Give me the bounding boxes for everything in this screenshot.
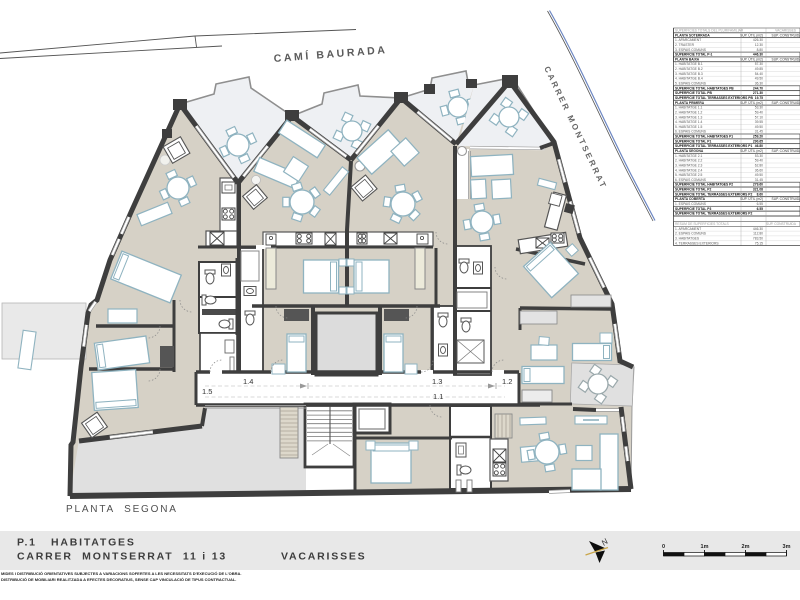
svg-text:112.80: 112.80 xyxy=(753,232,763,236)
svg-text:59.40: 59.40 xyxy=(755,110,763,114)
svg-text:P.1 HABITATGES: P.1 HABITATGES xyxy=(17,537,136,549)
svg-text:49.85: 49.85 xyxy=(755,67,763,71)
svg-text:1. ESPAIS COMUNS: 1. ESPAIS COMUNS xyxy=(675,202,707,206)
svg-text:31.45: 31.45 xyxy=(755,130,763,134)
svg-text:271.30: 271.30 xyxy=(753,91,763,95)
svg-text:783.50: 783.50 xyxy=(753,236,763,240)
svg-text:3m: 3m xyxy=(783,544,791,550)
svg-text:SUPERFICIE TOTAL P2: SUPERFICIE TOTAL P2 xyxy=(675,188,711,192)
svg-text:DISTRIBUCIÓ DE MOBILIARI REALI: DISTRIBUCIÓ DE MOBILIARI REALITZADA A EF… xyxy=(1,577,236,582)
svg-text:49.50: 49.50 xyxy=(755,125,763,129)
svg-text:62.80: 62.80 xyxy=(755,164,763,168)
svg-text:3. HABITATGES: 3. HABITATGES xyxy=(675,236,700,240)
svg-text:PLANTA COBERTA: PLANTA COBERTA xyxy=(675,197,706,201)
svg-text:446.30: 446.30 xyxy=(753,53,763,57)
svg-text:SUP. ÚTIL (m2): SUP. ÚTIL (m2) xyxy=(740,101,763,105)
svg-text:SUP. CONSTRUIDA: SUP. CONSTRUIDA xyxy=(766,222,797,226)
svg-text:1. HABITATGE 1.1: 1. HABITATGE 1.1 xyxy=(675,106,703,110)
svg-text:31.45: 31.45 xyxy=(755,178,763,182)
svg-text:1.2: 1.2 xyxy=(502,377,512,386)
svg-text:1.1: 1.1 xyxy=(433,392,443,401)
svg-text:2m: 2m xyxy=(742,544,750,550)
svg-text:8.80: 8.80 xyxy=(757,48,764,52)
svg-text:SUP. CONSTRUIDA (m2): SUP. CONSTRUIDA (m2) xyxy=(772,101,800,105)
svg-text:5. ESPAIS COMUNS: 5. ESPAIS COMUNS xyxy=(675,82,707,86)
svg-text:3. ESPAIS COMUNS: 3. ESPAIS COMUNS xyxy=(675,48,707,52)
svg-text:VACARISSES: VACARISSES xyxy=(775,28,797,32)
svg-text:57.10: 57.10 xyxy=(755,115,763,119)
svg-text:36.30: 36.30 xyxy=(755,82,763,86)
svg-text:SUPERFICIE TOTAL PB: SUPERFICIE TOTAL PB xyxy=(675,91,712,95)
svg-text:19.75: 19.75 xyxy=(755,96,763,100)
svg-text:53.30: 53.30 xyxy=(755,106,763,110)
svg-text:CARRER MONTSERRAT 11 i 13: CARRER MONTSERRAT 11 i 13 xyxy=(17,551,227,563)
svg-text:3. HABITATGE 2.3: 3. HABITATGE 2.3 xyxy=(675,164,703,168)
svg-text:2. TRASTER: 2. TRASTER xyxy=(675,43,695,47)
svg-text:4. HABITATGE 1.4: 4. HABITATGE 1.4 xyxy=(675,120,703,124)
svg-text:3. HABITATGE B.3: 3. HABITATGE B.3 xyxy=(675,72,703,76)
svg-text:8.60: 8.60 xyxy=(757,192,764,196)
svg-text:1.3: 1.3 xyxy=(432,377,442,386)
svg-text:1m: 1m xyxy=(701,544,709,550)
svg-text:59.40: 59.40 xyxy=(755,159,763,163)
svg-text:MIDES I DISTRIBUCIÓ ORIENTATIV: MIDES I DISTRIBUCIÓ ORIENTATIVES SUBJECT… xyxy=(1,571,242,576)
svg-text:SUPERFICIE TOTAL P3: SUPERFICIE TOTAL P3 xyxy=(675,207,711,211)
svg-text:54.40: 54.40 xyxy=(755,72,763,76)
svg-text:6.55: 6.55 xyxy=(757,202,764,206)
svg-text:SUPERFICIE TOTAL TERRASSES EXT: SUPERFICIE TOTAL TERRASSES EXTERIORS PB xyxy=(675,96,753,100)
svg-text:SUP. ÚTIL (m2): SUP. ÚTIL (m2) xyxy=(740,33,763,37)
svg-text:5. HABITATGE 1.5: 5. HABITATGE 1.5 xyxy=(675,125,703,129)
svg-text:PLANTA SEGONA: PLANTA SEGONA xyxy=(675,149,704,153)
svg-text:SUP. CONSTRUIDA (m2): SUP. CONSTRUIDA (m2) xyxy=(772,33,800,37)
svg-text:SUPERFICIE TOTAL P1: SUPERFICIE TOTAL P1 xyxy=(675,139,711,143)
svg-text:2. HABITATGE 2.2: 2. HABITATGE 2.2 xyxy=(675,159,703,163)
svg-text:SUP. ÚTIL (m2): SUP. ÚTIL (m2) xyxy=(740,149,763,153)
svg-text:57.30: 57.30 xyxy=(755,62,763,66)
svg-text:244.70: 244.70 xyxy=(753,86,763,90)
svg-text:SUPERFICIES TOTALS DEL PLURIFA: SUPERFICIES TOTALS DEL PLURIFAMILIAR xyxy=(675,28,744,32)
svg-text:1. APARCAMENT: 1. APARCAMENT xyxy=(675,38,701,42)
svg-text:VACARISSES: VACARISSES xyxy=(281,551,367,563)
svg-text:SUP. CONSTRUIDA (m2): SUP. CONSTRUIDA (m2) xyxy=(772,57,800,61)
svg-text:290.65: 290.65 xyxy=(753,139,763,143)
svg-text:SUP. ÚTIL (m2): SUP. ÚTIL (m2) xyxy=(740,197,763,201)
svg-text:PLANTA SOTERRADA: PLANTA SOTERRADA xyxy=(675,33,710,37)
svg-text:PLANTA SEGONA: PLANTA SEGONA xyxy=(66,504,178,515)
svg-text:12.30: 12.30 xyxy=(755,43,763,47)
svg-text:4. HABITATGE 2.4: 4. HABITATGE 2.4 xyxy=(675,168,703,172)
svg-text:426.30: 426.30 xyxy=(753,38,763,42)
svg-text:2. HABITATGE B.2: 2. HABITATGE B.2 xyxy=(675,67,703,71)
svg-text:1. HABITATGE B.1: 1. HABITATGE B.1 xyxy=(675,62,703,66)
svg-text:SUP. CONSTRUIDA (m2): SUP. CONSTRUIDA (m2) xyxy=(772,197,800,201)
svg-text:321.08: 321.08 xyxy=(753,188,763,192)
svg-text:PLANTA BAIXA: PLANTA BAIXA xyxy=(675,57,700,61)
svg-text:6. ESPAIS COMUNS: 6. ESPAIS COMUNS xyxy=(675,130,707,134)
svg-text:RESUM DE SUPERFICIES TOTALS: RESUM DE SUPERFICIES TOTALS xyxy=(675,222,729,226)
svg-text:49.50: 49.50 xyxy=(755,173,763,177)
svg-text:1. APARCAMENT: 1. APARCAMENT xyxy=(675,227,701,231)
svg-text:SUP. CONSTRUIDA (m2): SUP. CONSTRUIDA (m2) xyxy=(772,149,800,153)
svg-text:2. HABITATGE 1.2: 2. HABITATGE 1.2 xyxy=(675,110,703,114)
svg-text:0: 0 xyxy=(662,544,665,550)
svg-text:6. ESPAIS COMUNS: 6. ESPAIS COMUNS xyxy=(675,178,707,182)
svg-text:259.20: 259.20 xyxy=(753,135,763,139)
svg-text:3. HABITATGE 1.3: 3. HABITATGE 1.3 xyxy=(675,115,703,119)
svg-text:PLANTA PRIMERA: PLANTA PRIMERA xyxy=(675,101,705,105)
svg-text:1.4: 1.4 xyxy=(243,377,253,386)
svg-text:2. ESPAIS COMUNS: 2. ESPAIS COMUNS xyxy=(675,232,707,236)
svg-text:4. TERRASSES EXTERIORS: 4. TERRASSES EXTERIORS xyxy=(675,241,719,245)
svg-text:1. HABITATGE 2.1: 1. HABITATGE 2.1 xyxy=(675,154,703,158)
svg-text:SUPERFICIE TOTAL HABITATGES P1: SUPERFICIE TOTAL HABITATGES P1 xyxy=(675,135,733,139)
svg-text:1.5: 1.5 xyxy=(202,387,212,396)
svg-text:SUPERFICIE TOTAL HABITATGES P2: SUPERFICIE TOTAL HABITATGES P2 xyxy=(675,183,733,187)
svg-text:75.15: 75.15 xyxy=(755,241,763,245)
svg-text:6.55: 6.55 xyxy=(757,207,764,211)
svg-text:39.55: 39.55 xyxy=(755,120,763,124)
svg-text:446.30: 446.30 xyxy=(753,227,763,231)
svg-text:46.80: 46.80 xyxy=(755,144,763,148)
svg-text:5. HABITATGE 2.5: 5. HABITATGE 2.5 xyxy=(675,173,703,177)
svg-text:36.60: 36.60 xyxy=(755,168,763,172)
svg-text:53.30: 53.30 xyxy=(755,154,763,158)
svg-text:SUPERFICIE TOTAL HABITATGES PB: SUPERFICIE TOTAL HABITATGES PB xyxy=(675,86,734,90)
svg-text:4. HABITATGE B.4: 4. HABITATGE B.4 xyxy=(675,77,703,81)
svg-text:279.60: 279.60 xyxy=(753,183,763,187)
svg-text:SUP. ÚTIL (m2): SUP. ÚTIL (m2) xyxy=(740,57,763,61)
svg-text:49.50: 49.50 xyxy=(755,77,763,81)
svg-text:SUPERFICIE TOTAL P-1: SUPERFICIE TOTAL P-1 xyxy=(675,53,713,57)
